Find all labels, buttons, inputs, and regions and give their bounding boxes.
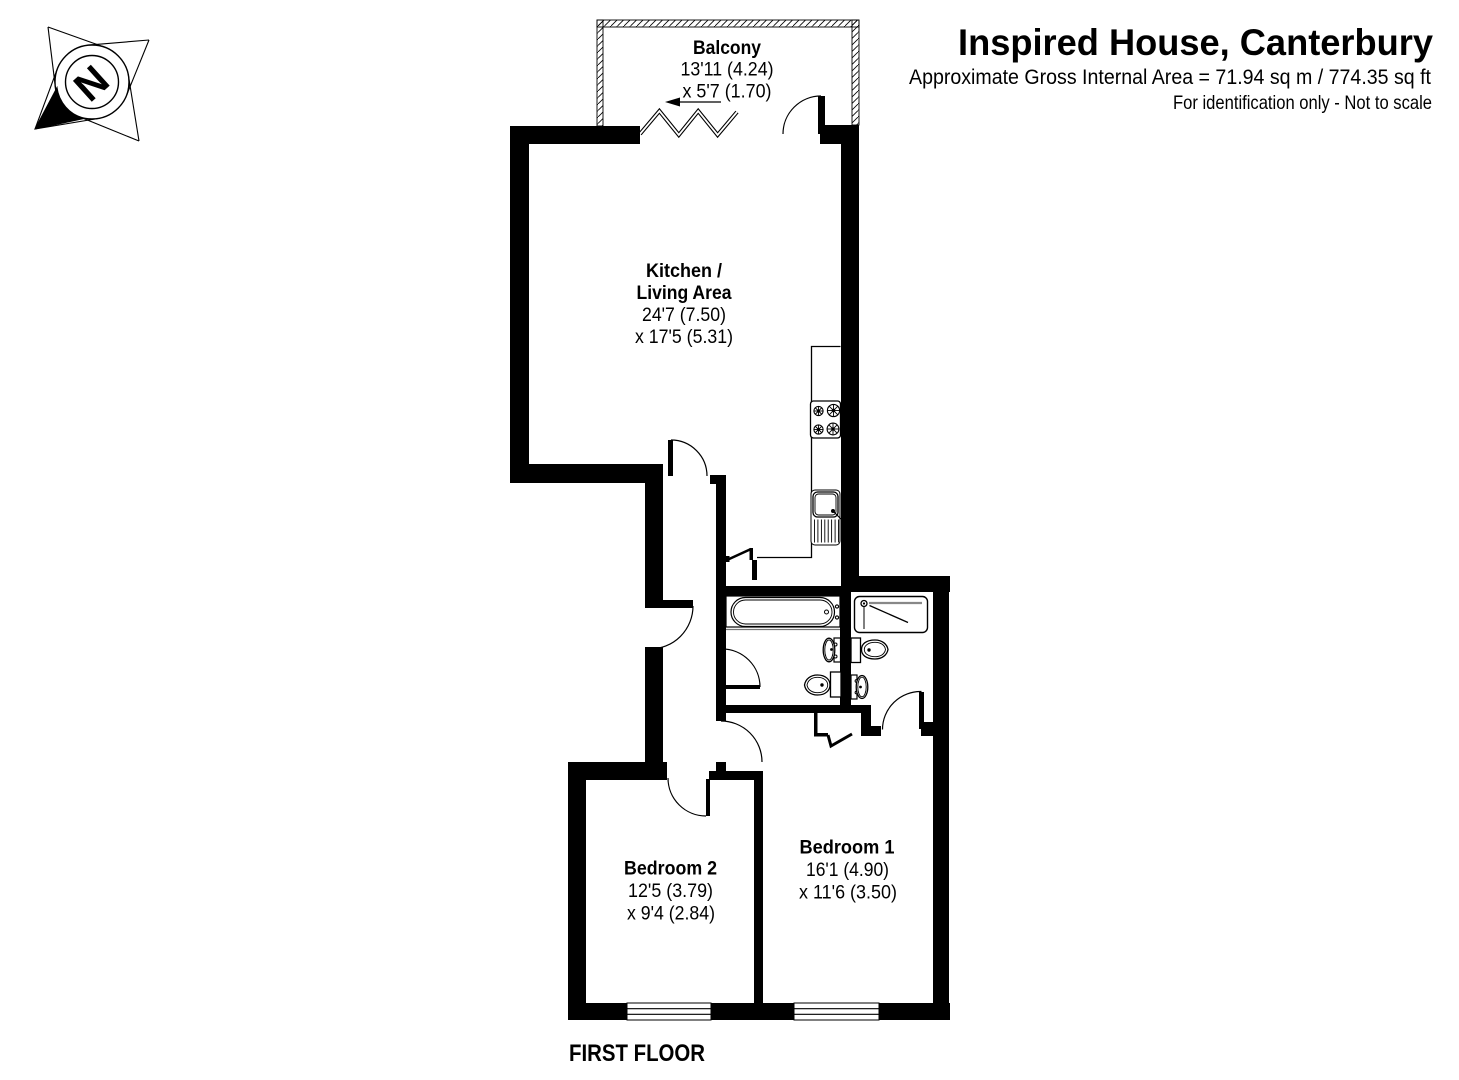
- svg-text:13'11 (4.24): 13'11 (4.24): [681, 59, 774, 81]
- svg-text:x 9'4 (2.84): x 9'4 (2.84): [627, 903, 715, 925]
- svg-text:24'7 (7.50): 24'7 (7.50): [642, 304, 726, 326]
- svg-text:x 11'6 (3.50): x 11'6 (3.50): [799, 882, 897, 904]
- svg-text:x 5'7 (1.70): x 5'7 (1.70): [683, 81, 772, 103]
- svg-text:Balcony: Balcony: [693, 37, 761, 59]
- svg-text:x 17'5 (5.31): x 17'5 (5.31): [635, 326, 733, 348]
- svg-text:12'5 (3.79): 12'5 (3.79): [628, 880, 713, 902]
- svg-text:Bedroom 1: Bedroom 1: [800, 837, 895, 859]
- svg-text:Living Area: Living Area: [637, 282, 732, 304]
- svg-text:Approximate Gross Internal Are: Approximate Gross Internal Area = 71.94 …: [909, 65, 1431, 89]
- svg-text:Bedroom 2: Bedroom 2: [624, 858, 717, 880]
- svg-text:For identification only - Not: For identification only - Not to scale: [1173, 92, 1432, 114]
- svg-text:Inspired House, Canterbury: Inspired House, Canterbury: [958, 22, 1433, 63]
- svg-text:16'1 (4.90): 16'1 (4.90): [806, 859, 889, 881]
- svg-text:FIRST FLOOR: FIRST FLOOR: [569, 1040, 705, 1067]
- svg-text:Kitchen /: Kitchen /: [646, 260, 723, 282]
